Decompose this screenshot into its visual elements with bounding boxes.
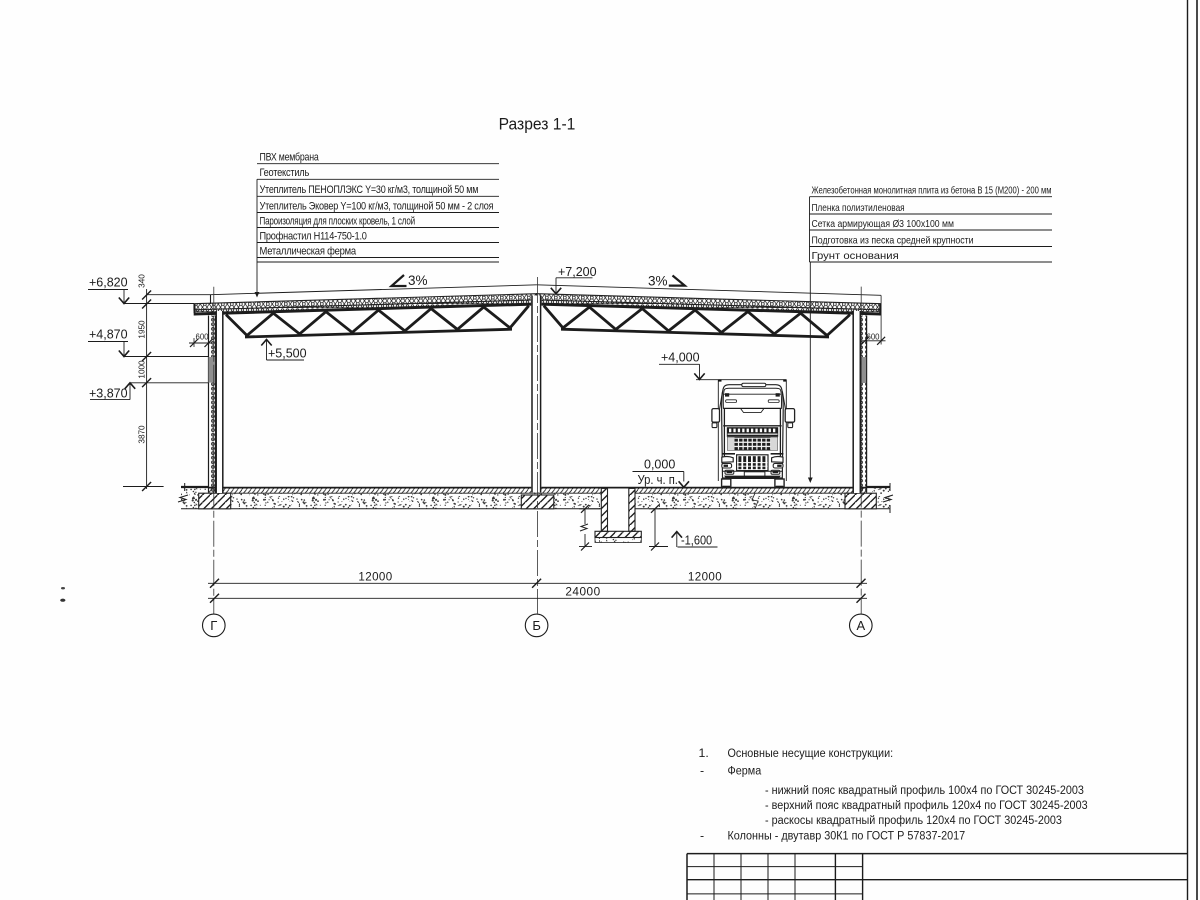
svg-text:ПВХ мембрана: ПВХ мембрана <box>260 152 320 164</box>
svg-text:Геотекстиль: Геотекстиль <box>260 168 310 180</box>
svg-text:600: 600 <box>867 332 881 341</box>
svg-text:1950: 1950 <box>138 320 147 339</box>
svg-text:+3,870: +3,870 <box>89 387 128 401</box>
svg-text:24000: 24000 <box>565 585 600 599</box>
svg-text:3870: 3870 <box>138 425 147 444</box>
svg-text:Профнастил Н114-750-1.0: Профнастил Н114-750-1.0 <box>260 231 368 243</box>
svg-text:+4,870: +4,870 <box>89 328 128 342</box>
svg-text:Сетка армирующая Ø3 100х100 мм: Сетка армирующая Ø3 100х100 мм <box>812 218 954 230</box>
svg-text:А: А <box>856 618 865 633</box>
svg-text:600: 600 <box>196 333 210 342</box>
svg-text:-: - <box>700 763 704 777</box>
svg-text:Грунт основания: Грунт основания <box>812 250 899 261</box>
svg-text:- верхний пояс квадратный проф: - верхний пояс квадратный профиль 120х4 … <box>765 799 1088 812</box>
svg-text:Разрез 1-1: Разрез 1-1 <box>499 115 576 134</box>
svg-text:- раскосы квадратный профиль 1: - раскосы квадратный профиль 120х4 по ГО… <box>765 814 1062 827</box>
svg-text:Пленка полиэтиленовая: Пленка полиэтиленовая <box>812 202 905 213</box>
svg-text:+7,200: +7,200 <box>558 265 597 279</box>
svg-text:- нижний пояс квадратный профи: - нижний пояс квадратный профиль 100х4 п… <box>765 784 1084 797</box>
svg-text:Г: Г <box>210 618 217 633</box>
svg-text:Подготовка из песка средней кр: Подготовка из песка средней крупности <box>812 235 974 247</box>
svg-text:Металлическая ферма: Металлическая ферма <box>260 245 357 258</box>
svg-text:340: 340 <box>138 274 147 288</box>
svg-text:Б: Б <box>532 618 541 633</box>
svg-text:Основные несущие конструкции:: Основные несущие конструкции: <box>728 747 894 760</box>
svg-text:Железобетонная монолитная плит: Железобетонная монолитная плита из бетон… <box>812 185 1052 196</box>
svg-text:Пароизоляция для плоских крове: Пароизоляция для плоских кровель, 1 слой <box>260 214 415 226</box>
svg-text:1000: 1000 <box>138 360 147 379</box>
svg-text:+6,820: +6,820 <box>89 276 128 290</box>
svg-text:0,000: 0,000 <box>644 457 675 471</box>
svg-text:Колонны - двутавр 30К1 по ГОСТ: Колонны - двутавр 30К1 по ГОСТ Р 57837-2… <box>728 830 966 843</box>
svg-text:1.: 1. <box>699 746 709 760</box>
svg-text:3%: 3% <box>408 273 428 288</box>
svg-text:+4,000: +4,000 <box>661 351 700 365</box>
svg-text:Утеплитель ПЕНОПЛЭКС Y=30 кг/м: Утеплитель ПЕНОПЛЭКС Y=30 кг/м3, толщино… <box>260 184 479 196</box>
svg-text:+5,500: +5,500 <box>268 347 307 361</box>
svg-text:Утеплитель Эковер Y=100 кг/м3,: Утеплитель Эковер Y=100 кг/м3, толщиной … <box>260 201 494 213</box>
svg-text:12000: 12000 <box>358 571 392 584</box>
svg-text:-: - <box>700 828 704 842</box>
svg-text:3%: 3% <box>648 274 668 289</box>
svg-text:12000: 12000 <box>688 571 722 584</box>
svg-text:Ферма: Ферма <box>728 765 762 778</box>
svg-text:-1,600: -1,600 <box>681 534 713 548</box>
svg-text:Ур. ч. п.: Ур. ч. п. <box>638 473 678 488</box>
